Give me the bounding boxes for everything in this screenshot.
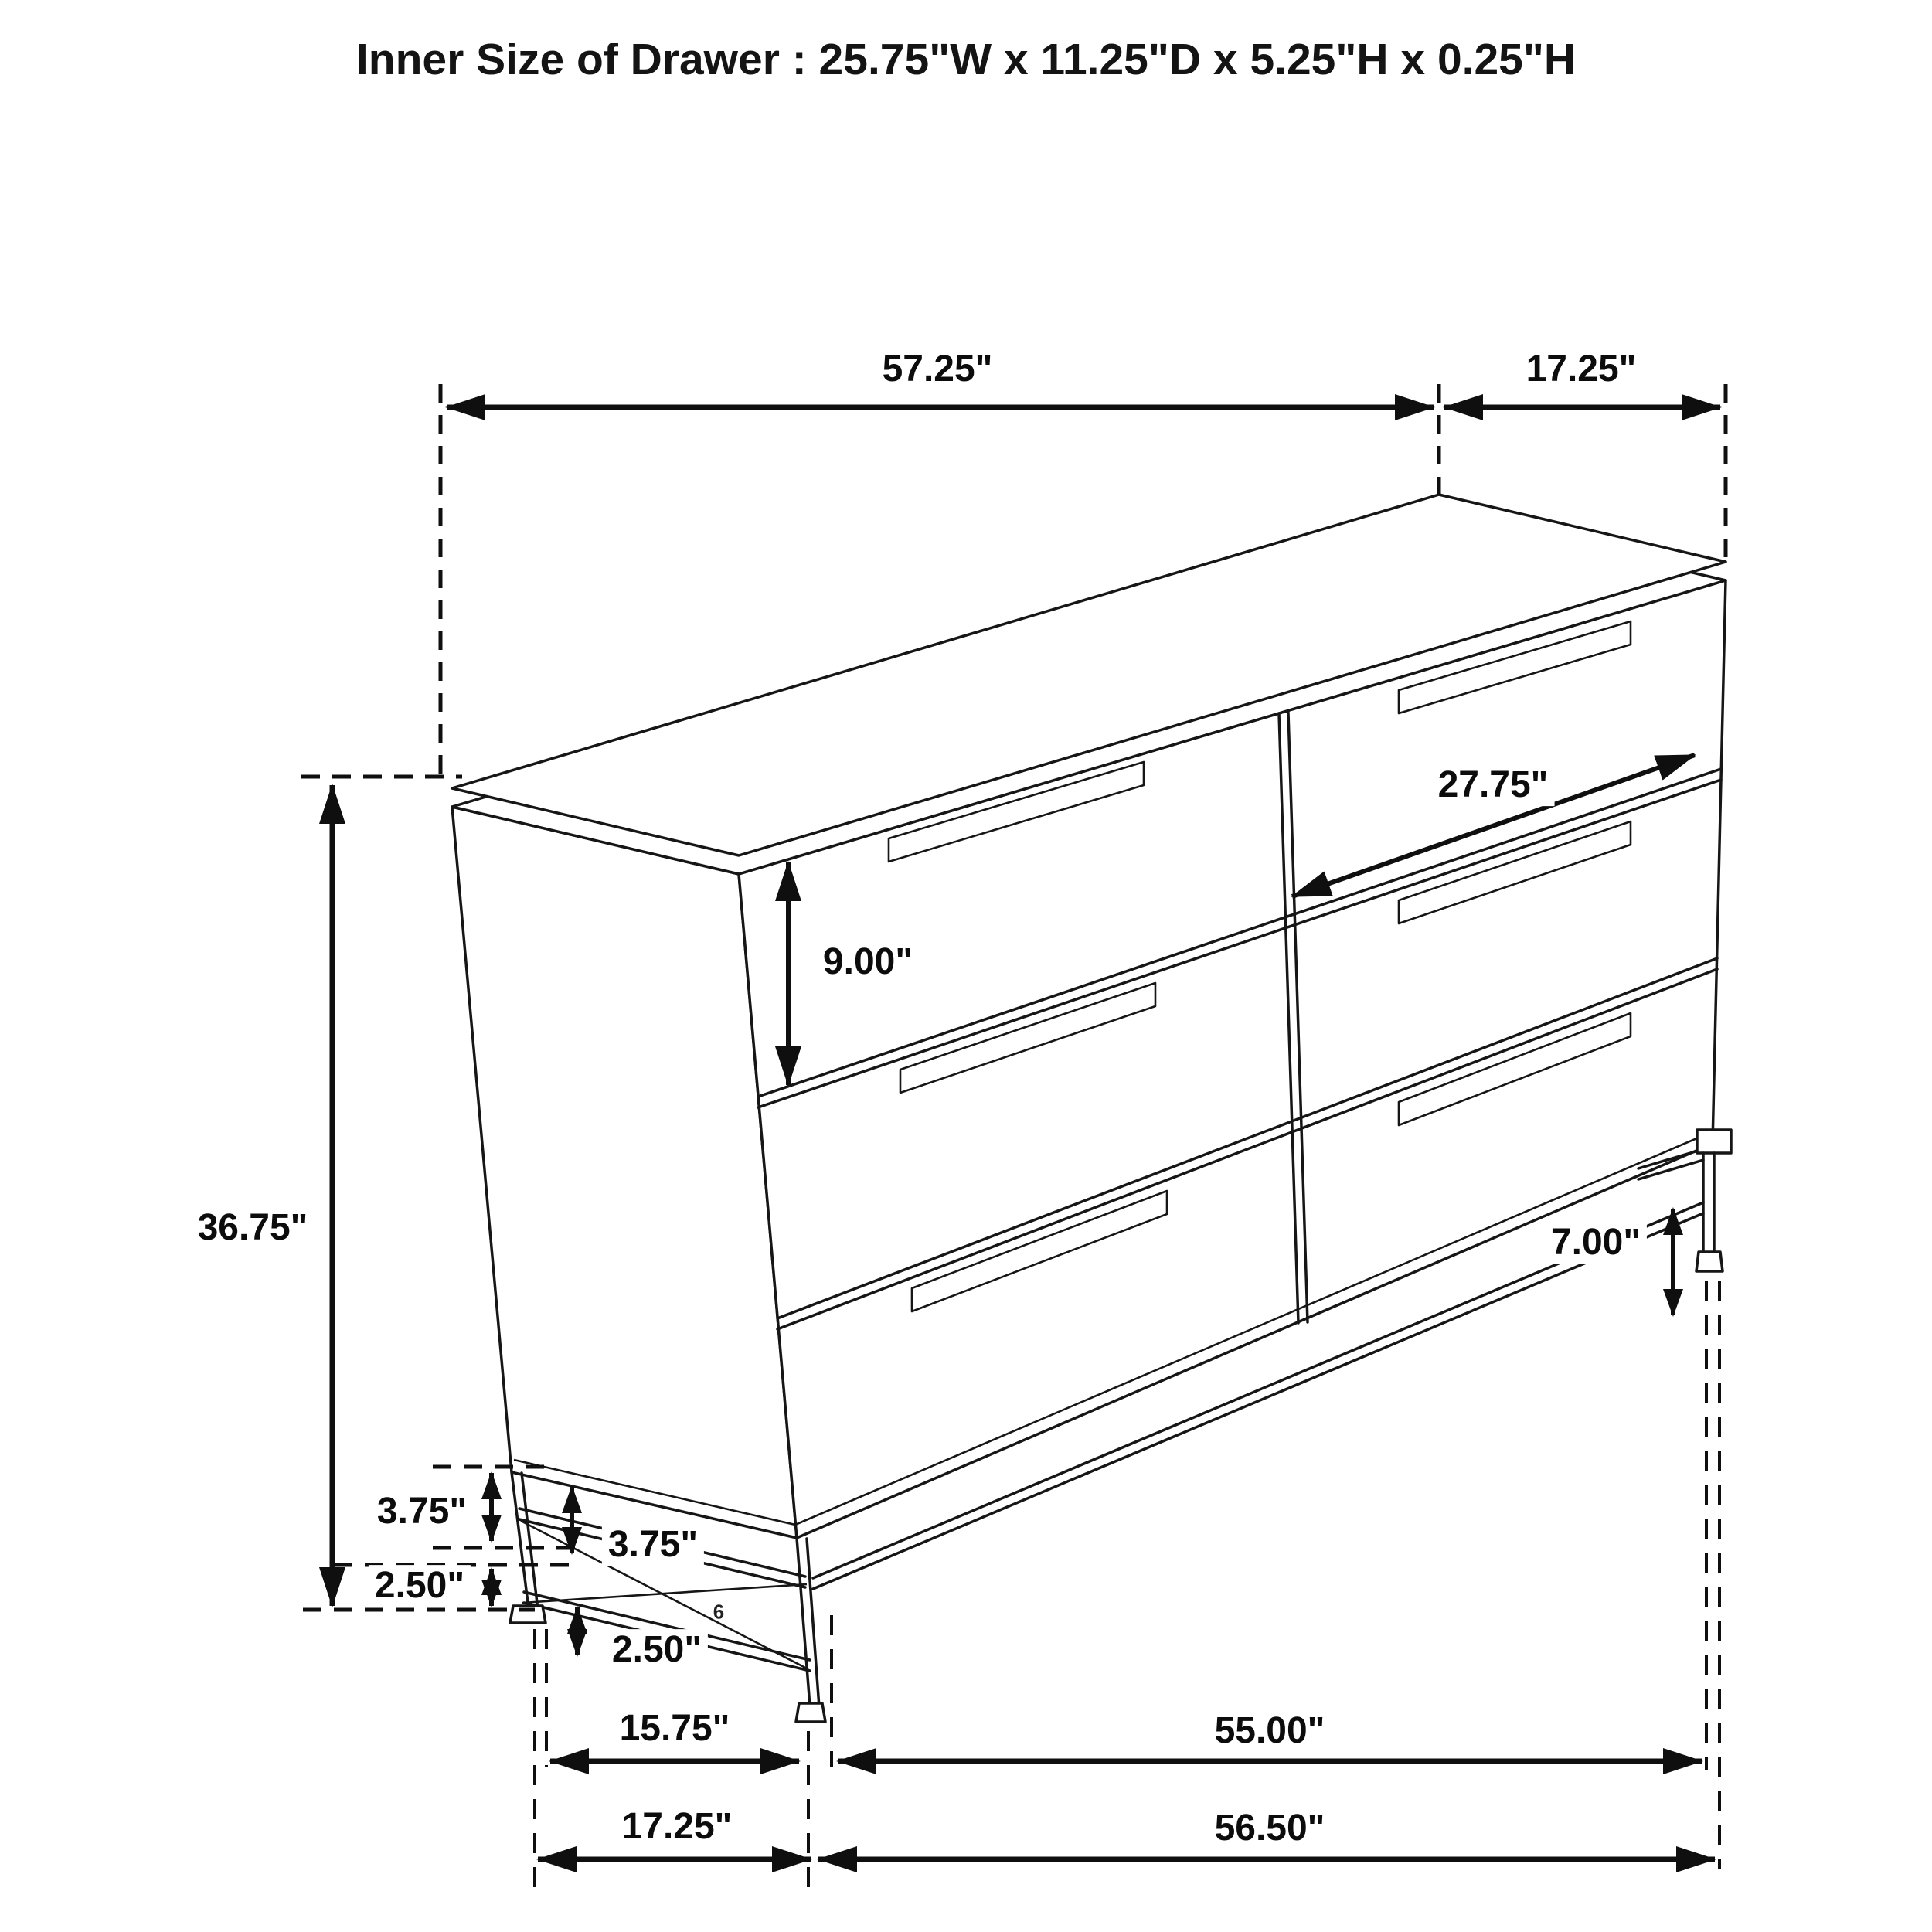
dim-label-base-lower-inner: 2.50" [606, 1629, 708, 1671]
cabinet [452, 495, 1726, 1538]
dim-label-base-side-depth-overall: 17.25" [616, 1806, 739, 1848]
dim-label-base-side-depth: 15.75" [614, 1708, 736, 1750]
dresser-line-art [0, 0, 1932, 1932]
corner-block [1697, 1130, 1731, 1153]
dim-label-drawer-width: 27.75" [1432, 764, 1555, 806]
page-title: Inner Size of Drawer : 25.75"W x 11.25"D… [356, 34, 1576, 85]
dim-label-base-front-width: 55.00" [1209, 1710, 1332, 1752]
diagram-page: Inner Size of Drawer : 25.75"W x 11.25"D… [0, 0, 1932, 1932]
stray-mark: 6 [713, 1600, 724, 1624]
dim-label-base-lower-outer: 2.50" [369, 1565, 471, 1607]
dim-label-base-upper-inner: 3.75" [602, 1524, 704, 1566]
dim-label-base-upper-outer: 3.75" [371, 1491, 473, 1532]
front-right-leg [1696, 1153, 1723, 1271]
dim-label-drawer-height: 9.00" [817, 941, 919, 983]
dim-label-right-leg-height: 7.00" [1545, 1222, 1647, 1264]
dim-label-overall-height: 36.75" [192, 1207, 315, 1249]
dim-label-base-front-width-overall: 56.50" [1209, 1808, 1332, 1849]
front-left-leg [796, 1538, 825, 1722]
dim-label-top-depth: 17.25" [1520, 349, 1643, 390]
dim-label-top-width: 57.25" [876, 349, 999, 390]
x-brace [522, 1584, 807, 1603]
